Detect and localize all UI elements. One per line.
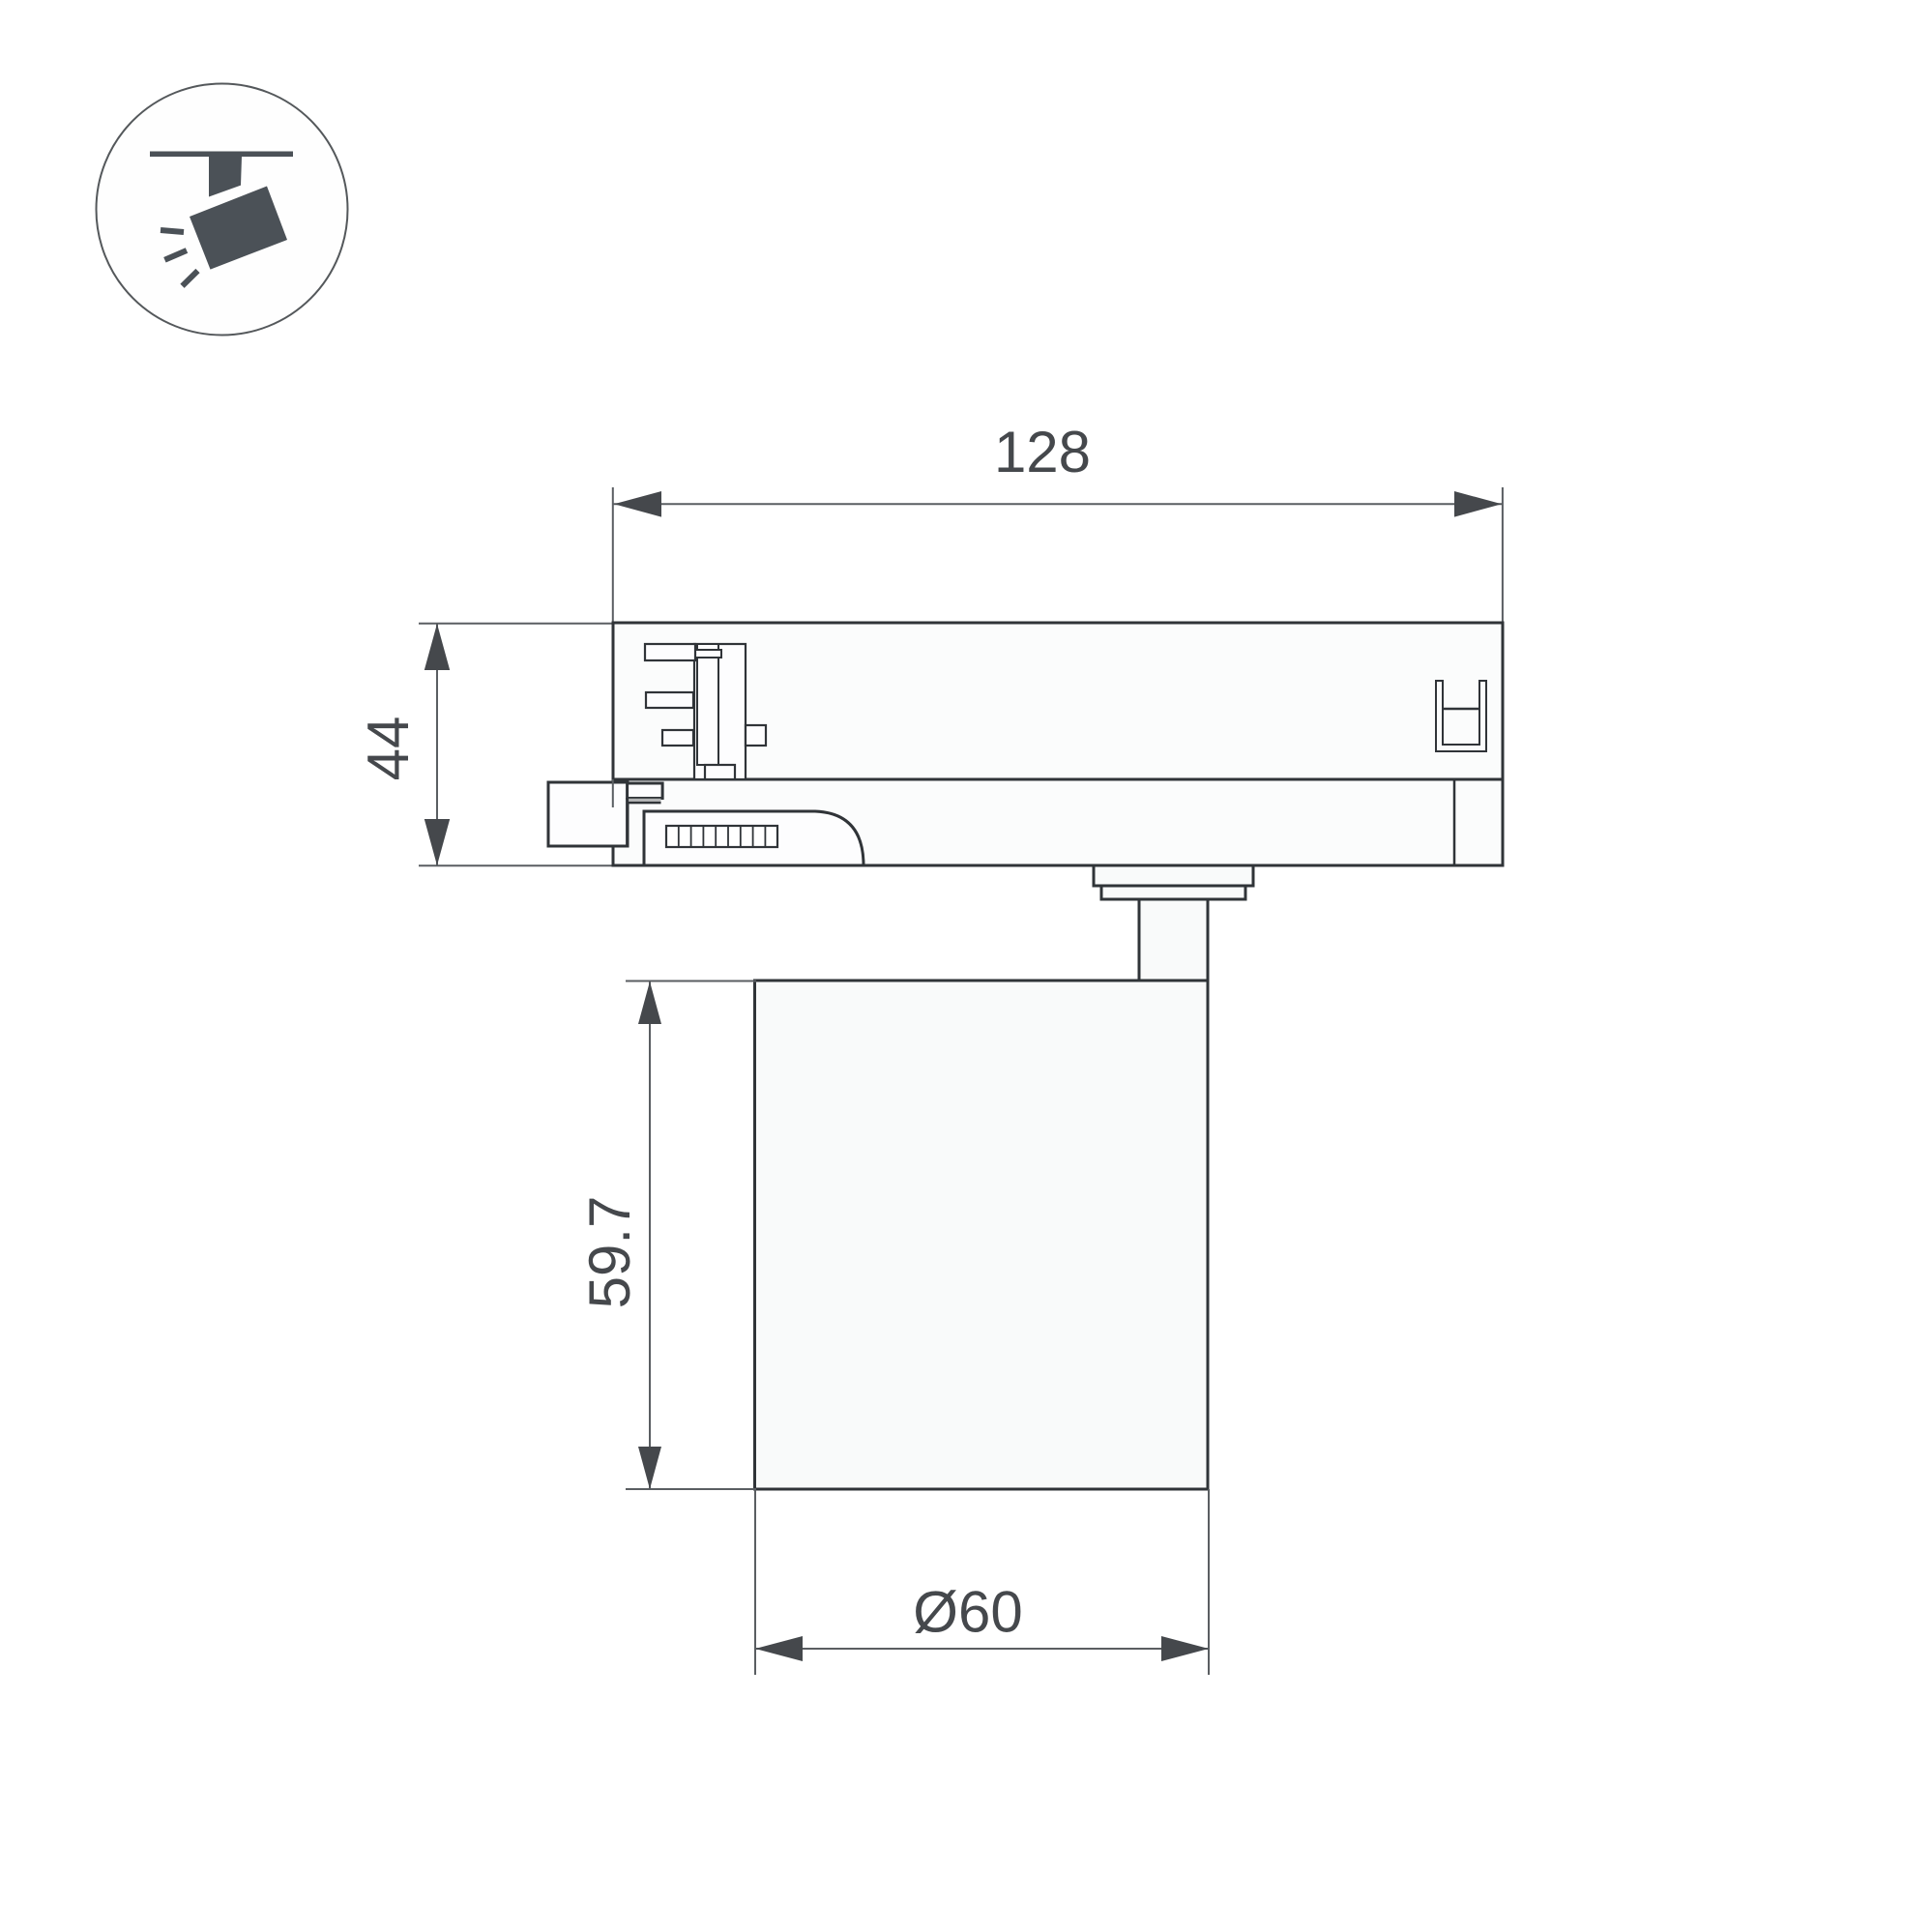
svg-text:59.7: 59.7 (577, 1196, 642, 1309)
svg-text:128: 128 (994, 420, 1091, 484)
svg-text:Ø60: Ø60 (913, 1580, 1022, 1645)
svg-text:44: 44 (356, 717, 421, 781)
